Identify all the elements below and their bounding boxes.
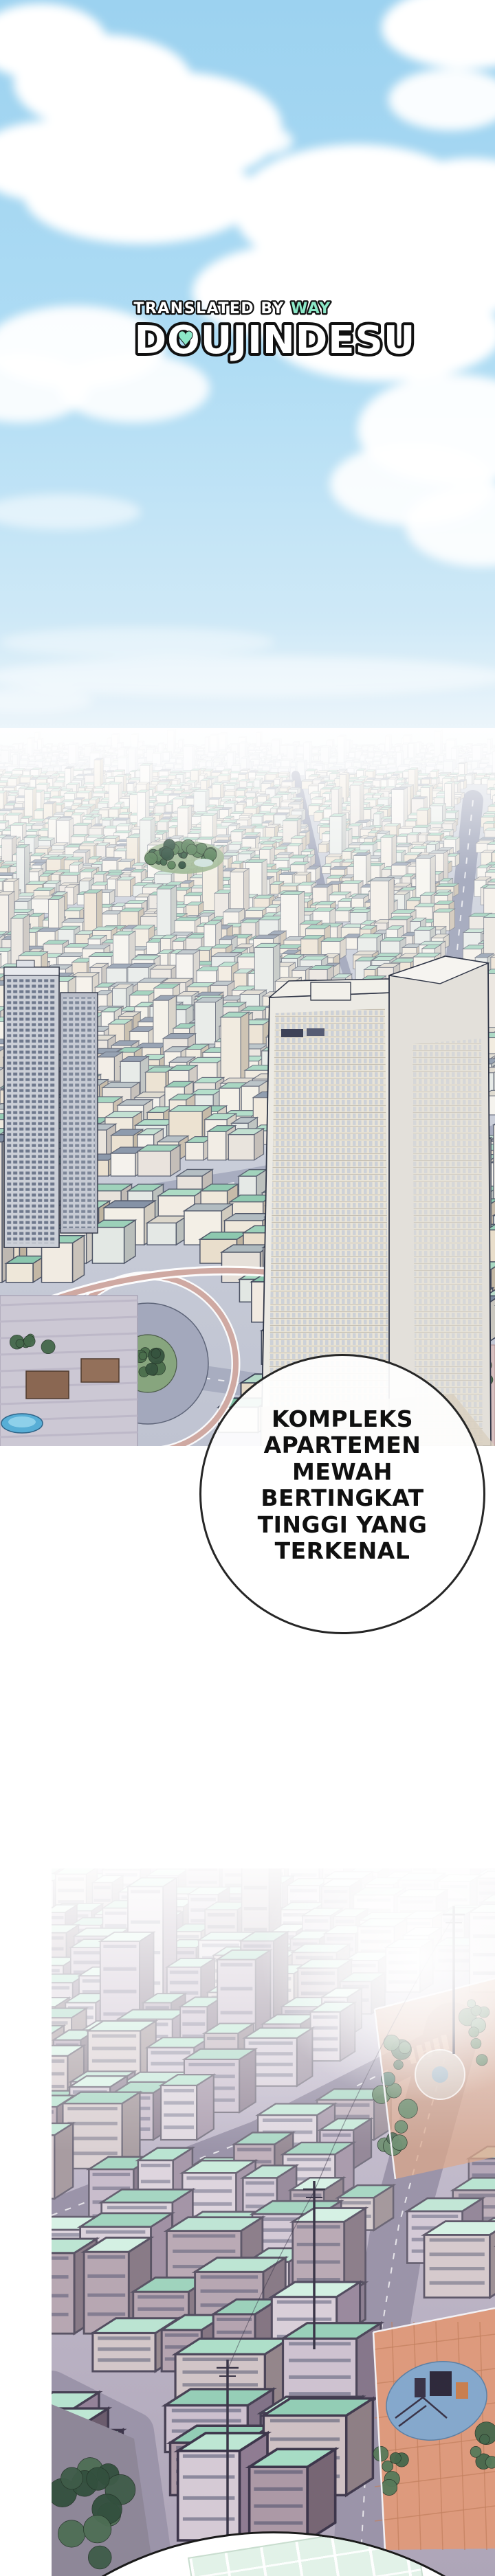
speech-line: BERTINGKAT [225,1485,459,1512]
horizon-haze [0,728,495,879]
speech-line: TINGGI YANG [225,1512,459,1539]
comic-page: TRANSLATED BY WAY DOUJINDESU ♥ KOMPLEKSA… [0,0,495,2576]
speech-bubble-text: KOMPLEKSAPARTEMENMEWAHBERTINGKATTINGGI Y… [225,1406,459,1565]
speech-line: TERKENAL [225,1538,459,1565]
speech-line: KOMPLEKS [225,1406,459,1433]
heart-icon: ♥ [177,328,194,350]
credit-prefix: TRANSLATED BY [133,300,291,317]
speech-bubble: KOMPLEKSAPARTEMENMEWAHBERTINGKATTINGGI Y… [199,1354,485,1634]
panel-city-street [52,1868,495,2576]
credit-team: WAY [291,300,331,317]
city-aerial-illustration: TRANSLATED BY WAY DOUJINDESU ♥ [0,0,495,1446]
city-street-illustration [52,1868,495,2576]
speech-line: MEWAH [225,1459,459,1486]
glass-roof [188,2531,431,2576]
speech-line: APARTEMEN [225,1432,459,1459]
panel-city-aerial: TRANSLATED BY WAY DOUJINDESU ♥ [0,0,495,1446]
translator-credit: TRANSLATED BY WAY [133,300,331,317]
